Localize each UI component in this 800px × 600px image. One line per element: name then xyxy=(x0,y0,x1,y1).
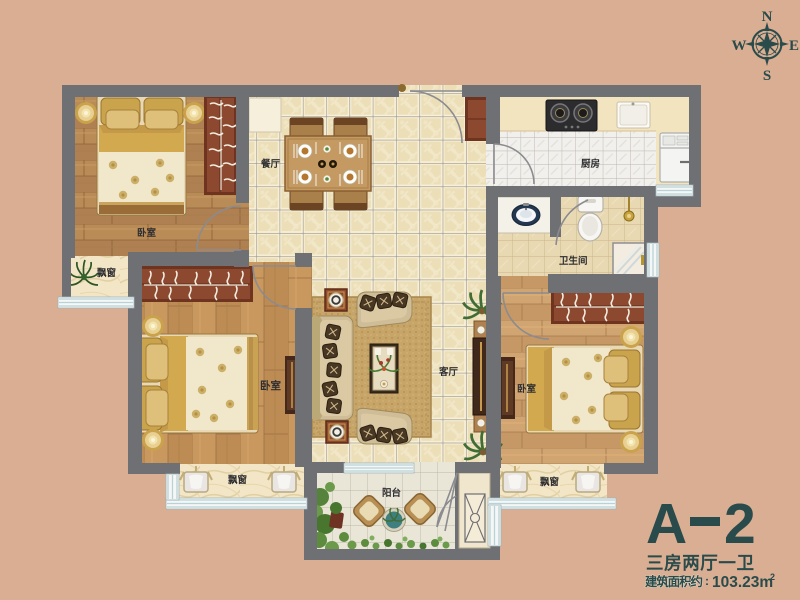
svg-text:S: S xyxy=(763,68,771,84)
svg-text:卧室: 卧室 xyxy=(137,227,157,239)
svg-text:飘窗: 飘窗 xyxy=(227,474,248,486)
svg-text:餐厅: 餐厅 xyxy=(260,158,281,170)
svg-text:A: A xyxy=(646,492,687,556)
svg-text:N: N xyxy=(762,9,773,25)
svg-text:客厅: 客厅 xyxy=(438,366,459,378)
svg-text:E: E xyxy=(789,38,799,54)
svg-text::: : xyxy=(705,574,709,588)
svg-text:卧室: 卧室 xyxy=(260,379,281,392)
svg-text:卧室: 卧室 xyxy=(517,383,537,395)
svg-text:飘窗: 飘窗 xyxy=(539,476,560,488)
svg-text:飘窗: 飘窗 xyxy=(96,267,117,279)
svg-text:厨房: 厨房 xyxy=(581,158,600,170)
svg-text:三房两厅一卫: 三房两厅一卫 xyxy=(646,553,754,573)
svg-text:W: W xyxy=(732,38,747,54)
svg-text:阳台: 阳台 xyxy=(382,487,402,499)
svg-text:2: 2 xyxy=(724,492,756,556)
svg-text:卫生间: 卫生间 xyxy=(559,255,588,267)
svg-text:建筑面积约: 建筑面积约 xyxy=(645,574,703,589)
svg-text:103.23m: 103.23m xyxy=(712,574,773,591)
svg-text:2: 2 xyxy=(770,572,775,582)
